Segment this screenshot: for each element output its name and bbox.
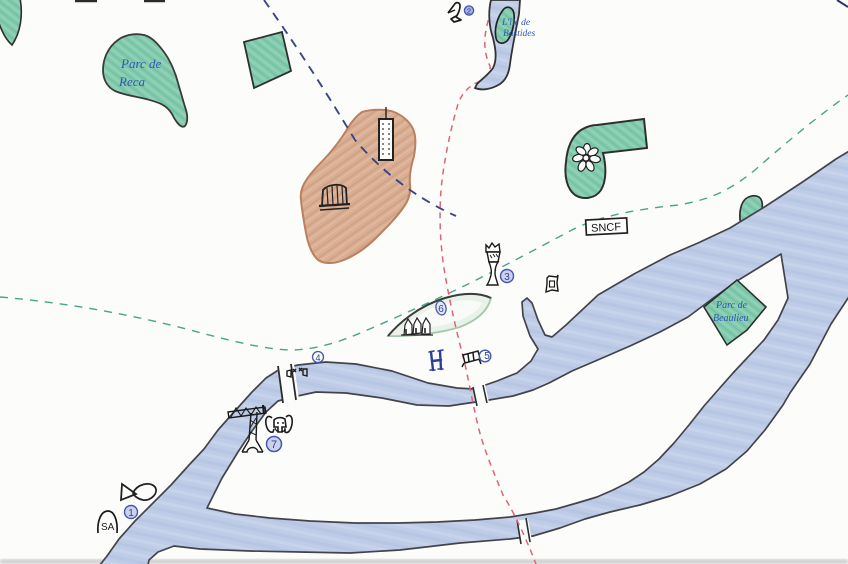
svg-text:Parc de: Parc de [715, 300, 748, 311]
svg-text:SNCF: SNCF [591, 221, 622, 235]
svg-text:5: 5 [484, 351, 490, 362]
svg-text:4: 4 [315, 353, 320, 363]
svg-text:SA: SA [101, 522, 115, 533]
svg-text:7: 7 [271, 439, 277, 451]
svg-text:Bastides: Bastides [503, 29, 535, 39]
svg-text:L'île de: L'île de [501, 18, 530, 28]
svg-text:3: 3 [504, 272, 510, 283]
svg-text:Parc de: Parc de [120, 56, 162, 71]
svg-text:1: 1 [128, 508, 134, 519]
svg-text:Reca: Reca [118, 74, 145, 89]
svg-text:Beaulieu: Beaulieu [713, 313, 749, 324]
svg-text:2: 2 [467, 7, 471, 16]
svg-text:6: 6 [438, 304, 444, 315]
